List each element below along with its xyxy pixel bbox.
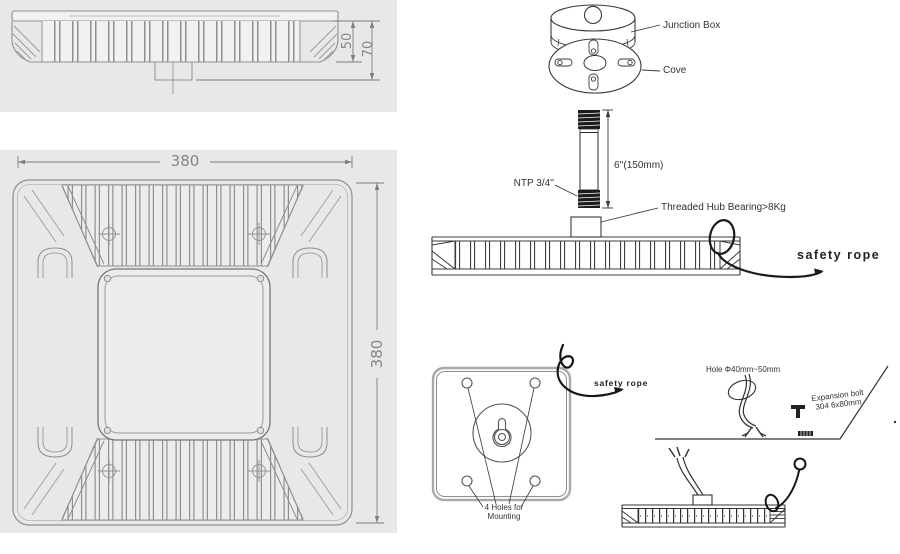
hole-leader-lines — [468, 388, 534, 507]
technical-drawing-sheet: 50 70 — [0, 0, 900, 554]
safety-rope-label-plate: safety rope — [594, 379, 648, 389]
fixture-hub-drawing — [425, 195, 890, 290]
expansion-bolt-icon — [791, 405, 805, 418]
junction-box-drawing — [545, 0, 675, 100]
side-view-drawing — [0, 0, 397, 112]
pipe-threads-top — [578, 110, 600, 129]
fixture-fins — [455, 241, 720, 269]
speck — [894, 421, 896, 423]
fixture-body — [12, 11, 338, 62]
installed-fixture-drawing — [610, 445, 815, 540]
driver-box — [155, 62, 192, 94]
threaded-hub — [571, 208, 658, 237]
cove-plate — [549, 39, 641, 93]
safety-rope-label: safety rope — [797, 248, 880, 262]
holes-label-line2: Mounting — [468, 512, 540, 521]
panel-side-view: 50 70 — [0, 0, 397, 112]
embedded-bolt-icon — [798, 431, 813, 436]
pipe-body — [580, 129, 598, 190]
ceiling-hole-label: Hole Φ40mm~50mm — [706, 365, 780, 374]
power-wires — [669, 447, 703, 495]
cove-label: Cove — [663, 65, 686, 77]
holes-for-mounting-label: 4 Holes for Mounting — [468, 503, 540, 521]
top-view-drawing — [0, 150, 397, 533]
glass-panel — [98, 269, 270, 440]
mounting-holes — [462, 378, 540, 486]
ntp-thread-label: NTP 3/4'' — [504, 178, 554, 190]
dim-height-380: 380 — [352, 329, 402, 379]
hub — [693, 495, 712, 505]
dim-depth-70: 70 — [357, 36, 379, 62]
panel-top-view: 380 380 — [0, 150, 397, 533]
holes-label-line1: 4 Holes for — [468, 503, 540, 512]
cable-hole — [726, 374, 766, 437]
pipe-length-label: 6''(150mm) — [614, 160, 663, 172]
dim-width-380: 380 — [160, 153, 210, 169]
keyhole-boss — [473, 404, 531, 462]
dim-depth-50: 50 — [336, 28, 358, 54]
threaded-hub-label: Threaded Hub Bearing>8Kg — [661, 202, 786, 214]
junction-box-label: Junction Box — [663, 20, 720, 32]
